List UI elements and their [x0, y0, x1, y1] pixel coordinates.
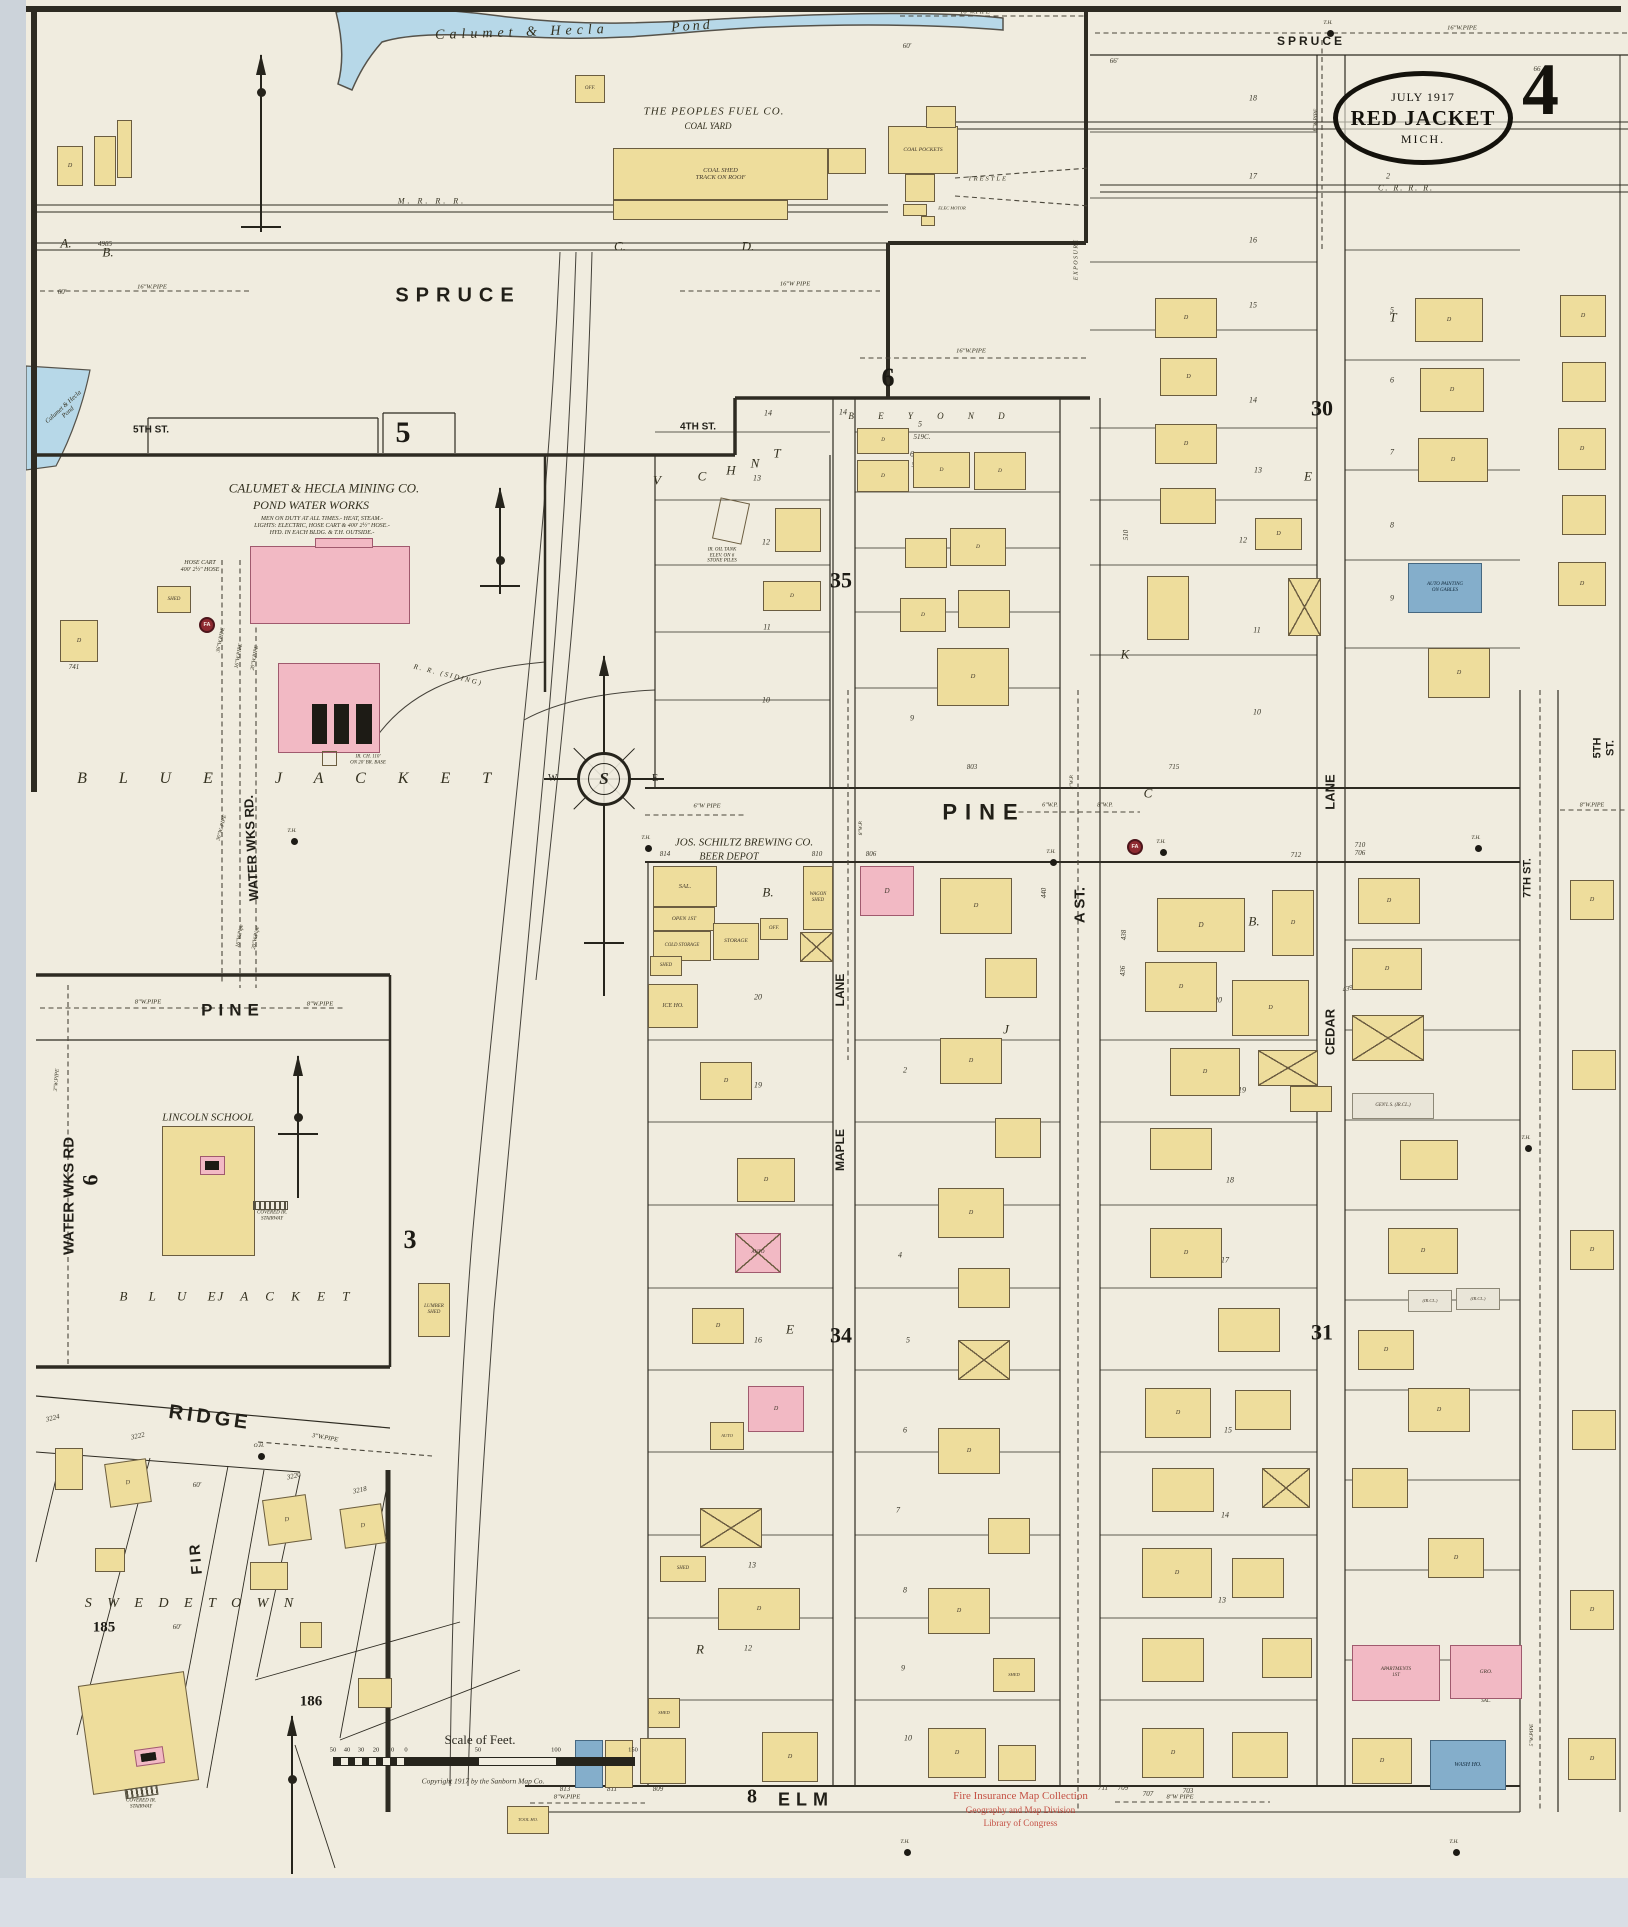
- building: [95, 1548, 125, 1572]
- block-number: 35: [830, 567, 852, 592]
- building: [958, 1340, 1010, 1380]
- lot-number: 8: [903, 1585, 907, 1594]
- building: [94, 136, 116, 186]
- building: [958, 1268, 1010, 1308]
- building: D: [857, 460, 909, 492]
- building: D: [1255, 518, 1302, 550]
- map-note: 8"W.PIPE: [307, 1000, 334, 1007]
- map-note: 8"W PIPE: [1166, 1793, 1193, 1800]
- marker-label: T.H.: [1156, 839, 1165, 845]
- lot-number: 7: [1390, 447, 1394, 456]
- building: D: [1418, 438, 1488, 482]
- fire-alarm-marker: FA: [199, 617, 215, 633]
- map-note: 20"W.PIPE: [250, 645, 261, 671]
- lot-number: 15: [1249, 300, 1257, 309]
- building: D: [737, 1158, 795, 1202]
- building: [1562, 362, 1606, 402]
- scan-edge-left: [0, 0, 26, 1927]
- copyright-note: Copyright 1917 by the Sanborn Map Co.: [422, 1777, 545, 1786]
- building: OPEN 1ST: [653, 907, 715, 931]
- address-label: 60': [173, 1624, 182, 1632]
- survey-marker: [645, 845, 652, 852]
- lot-number: 6: [903, 1425, 907, 1434]
- map-note: MEN ON DUTY AT ALL TIMES.- HEAT, STEAM.-…: [254, 516, 390, 536]
- building: D: [938, 1428, 1000, 1474]
- marker-label: T.H.: [900, 1839, 909, 1845]
- section-letter: B.: [1248, 915, 1259, 930]
- block-number: 34: [830, 1322, 852, 1347]
- lot-number: 4: [898, 1250, 902, 1259]
- lot-number: 20: [754, 992, 762, 1001]
- building: [1262, 1638, 1312, 1678]
- lot-number: 10: [1253, 707, 1261, 716]
- map-note: 16"W.PIPE: [960, 8, 990, 15]
- section-letter: H: [726, 464, 735, 479]
- building: D: [1568, 1738, 1616, 1780]
- lot-number: 13: [748, 1560, 756, 1569]
- building: D: [1358, 1330, 1414, 1370]
- building: LUMBER SHED: [418, 1283, 450, 1337]
- building: GEN'L S. (IR.CL.): [1352, 1093, 1434, 1119]
- building: [162, 1126, 255, 1256]
- lot-number: 12: [744, 1643, 752, 1652]
- lot-number: 8: [1390, 520, 1394, 529]
- address-label: 803: [967, 764, 978, 772]
- map-note: B L U E: [119, 1290, 224, 1305]
- building: D: [262, 1494, 312, 1546]
- lot-number: 5: [1390, 305, 1394, 314]
- section-letter: K: [1121, 648, 1130, 663]
- building: D: [339, 1503, 386, 1548]
- building: TOOL HO.: [507, 1806, 549, 1834]
- building: D: [1145, 962, 1217, 1012]
- map-note: 6"W.P.: [1042, 803, 1058, 810]
- lot-number: 14: [839, 407, 847, 416]
- block-number: 31: [1311, 1319, 1333, 1344]
- building: [958, 590, 1010, 628]
- survey-marker: [1475, 845, 1482, 852]
- map-note: 20"W.Pipe: [251, 926, 261, 950]
- map-note: B E Y O N D: [848, 411, 1015, 421]
- building: [905, 174, 935, 202]
- survey-marker: [291, 838, 298, 845]
- section-letter: E: [1304, 470, 1312, 485]
- building: [613, 200, 788, 220]
- building: D: [950, 528, 1006, 566]
- building: D: [692, 1308, 744, 1344]
- block-number: 3: [404, 1225, 417, 1255]
- building: STORAGE: [713, 923, 759, 960]
- building: [712, 497, 750, 544]
- building: D: [763, 581, 821, 611]
- address-label: 712: [1291, 852, 1302, 860]
- map-note: J A C K E T: [275, 770, 505, 788]
- building: AUTO PAINTING ON GABLES: [1408, 563, 1482, 613]
- building: D: [60, 620, 98, 662]
- address-label: 519C.: [914, 434, 931, 442]
- street-label: 4TH ST.: [680, 421, 716, 432]
- building: [1562, 495, 1606, 535]
- address-label: 703: [1183, 1788, 1194, 1796]
- address-label: 440: [1041, 888, 1049, 899]
- building: [1262, 1468, 1310, 1508]
- street-label: MAPLE: [834, 1129, 848, 1171]
- building: OFF.: [760, 918, 788, 940]
- building: D: [1408, 1388, 1470, 1432]
- building: [828, 148, 866, 174]
- cartouche-date: JULY 1917: [1338, 90, 1508, 105]
- building: D: [1358, 878, 1420, 924]
- lot-number: 11: [763, 622, 770, 631]
- building: [253, 1201, 288, 1210]
- map-note: C. R. R. R.: [1378, 183, 1434, 192]
- street-label: SPRUCE: [1277, 35, 1345, 49]
- building: D: [1150, 1228, 1222, 1278]
- map-note: B L U E: [77, 770, 227, 788]
- building: [921, 216, 935, 226]
- building: D: [860, 866, 914, 916]
- map-note: LINCOLN SCHOOL: [162, 1112, 253, 1125]
- street-label: FIR: [186, 1541, 206, 1576]
- survey-marker: [1050, 859, 1057, 866]
- map-note: Calumet & Hecla: [435, 22, 609, 44]
- building: [300, 1622, 322, 1648]
- map-note: 16"W.PIPE: [234, 643, 245, 669]
- building: COAL POCKETS: [888, 126, 958, 174]
- section-letter: C: [1144, 787, 1153, 802]
- building: D: [748, 1386, 804, 1432]
- scale-title: Scale of Feet.: [444, 1732, 515, 1748]
- building: [1235, 1390, 1291, 1430]
- building: D: [928, 1588, 990, 1634]
- building: [1150, 1128, 1212, 1170]
- building: [700, 1508, 762, 1548]
- section-letter: J: [1003, 1023, 1009, 1038]
- building: AUTO: [735, 1233, 781, 1273]
- map-note: 16"W.PIPE: [1447, 24, 1477, 31]
- building: [995, 1118, 1041, 1158]
- lot-number: 12: [1239, 535, 1247, 544]
- map-note: 8"W.P.: [858, 821, 864, 836]
- marker-label: T.H.: [1521, 1135, 1530, 1141]
- cartouche-city: RED JACKET: [1338, 106, 1508, 131]
- building: [998, 1745, 1036, 1781]
- street-label: WATER WKS RD: [60, 1137, 77, 1255]
- survey-marker: [904, 1849, 911, 1856]
- building: AUTO: [710, 1422, 744, 1450]
- building: [312, 704, 327, 744]
- stamp-line-2: Geography and Map Division: [923, 1804, 1118, 1817]
- building: [315, 538, 373, 548]
- building: [1232, 1732, 1288, 1778]
- map-note: POND WATER WORKS: [253, 499, 369, 513]
- map-note: TRESTLE: [968, 175, 1008, 182]
- building: D: [1388, 1228, 1458, 1274]
- address-label: 715: [1169, 764, 1180, 772]
- building: D: [1160, 358, 1217, 396]
- marker-label: T.H.: [1323, 20, 1332, 26]
- street-label: PINE: [201, 1000, 265, 1019]
- building: D: [1155, 298, 1217, 338]
- section-letter: R: [696, 1643, 704, 1658]
- building: [1572, 1050, 1616, 1090]
- street-label: WATER WKS RD.: [242, 795, 262, 902]
- map-note: 5"W.PIPE: [1529, 1724, 1535, 1746]
- building: OFF.: [575, 75, 605, 103]
- block-number: 8: [747, 1786, 757, 1809]
- building: D: [1142, 1548, 1212, 1598]
- building: D: [1157, 898, 1245, 952]
- compass-monogram: S: [599, 769, 608, 789]
- building: SHED: [648, 1698, 680, 1728]
- building: D: [1155, 424, 1217, 464]
- section-letter: B.: [102, 246, 113, 261]
- street-label: PINE: [942, 799, 1025, 824]
- building: D: [718, 1588, 800, 1630]
- section-letter: E: [786, 1323, 794, 1338]
- sheet-number: 4: [1522, 48, 1559, 133]
- address-label: 3220: [286, 1472, 301, 1483]
- building: D: [1170, 1048, 1240, 1096]
- block-number: 6: [77, 1175, 102, 1186]
- map-note: IR. CH. 110' ON 20' BR. BASE: [350, 754, 386, 765]
- building: [775, 508, 821, 552]
- building: [1218, 1308, 1280, 1352]
- building: [358, 1678, 392, 1708]
- address-label: 710 706: [1355, 842, 1366, 858]
- survey-marker: [1525, 1145, 1532, 1152]
- building: [926, 106, 956, 128]
- lot-number: 16: [754, 1335, 762, 1344]
- building: [356, 704, 372, 744]
- building: [985, 958, 1037, 998]
- marker-label: T.H.: [1449, 1839, 1458, 1845]
- scale-bar-graphic: [333, 1757, 635, 1766]
- building: D: [1142, 1728, 1204, 1778]
- building: D: [1420, 368, 1484, 412]
- map-note: COAL YARD: [685, 121, 732, 131]
- map-annotation-layer: SPRUCESPRUCEPINEPINERIDGEELMFIR4TH ST.5T…: [0, 0, 1628, 1927]
- address-label: 438: [1121, 930, 1129, 941]
- building: D: [1558, 428, 1606, 470]
- lot-number: 17: [1221, 1255, 1229, 1264]
- building: APARTMENTS 1ST: [1352, 1645, 1440, 1701]
- building: D: [1428, 1538, 1484, 1578]
- building: [55, 1448, 83, 1490]
- loc-stamp: Fire Insurance Map Collection Geography …: [923, 1789, 1118, 1830]
- lot-number: 13: [1218, 1595, 1226, 1604]
- block-number: 5: [396, 416, 411, 450]
- scanned-sanborn-map: SPRUCESPRUCEPINEPINERIDGEELMFIR4TH ST.5T…: [0, 0, 1628, 1927]
- building: D: [974, 452, 1026, 490]
- map-note: R. R. (SIDING): [413, 664, 484, 689]
- building: SHED: [157, 586, 191, 613]
- map-cartouche: JULY 1917 RED JACKET MICH.: [1333, 71, 1513, 165]
- building: ICE HO.: [648, 984, 698, 1028]
- map-note: 16"W.PIPE: [137, 283, 167, 290]
- address-label: 809: [653, 1786, 664, 1794]
- survey-marker: [1453, 1849, 1460, 1856]
- address-label: 510: [1123, 530, 1131, 541]
- street-label: 7TH ST.: [1522, 858, 1535, 898]
- lot-number: 9: [1390, 593, 1394, 602]
- street-label: RIDGE: [167, 1401, 253, 1435]
- map-note: S W E D E T O W N: [85, 1596, 300, 1612]
- building: D: [1570, 1230, 1614, 1270]
- building: WASH HO.: [1430, 1740, 1506, 1790]
- map-note: COVERED IR. STAIRWAY: [257, 1210, 287, 1221]
- building: [800, 932, 833, 962]
- map-note: 3"W.PIPE: [311, 1432, 338, 1444]
- building: D: [1415, 298, 1483, 342]
- building: [250, 1562, 288, 1590]
- lot-number: 2: [1386, 171, 1390, 180]
- street-label: 5TH ST.: [1591, 736, 1616, 760]
- address-label: 810: [812, 851, 823, 859]
- building: (IR.CL.): [1456, 1288, 1500, 1310]
- map-note: ELEC MOTOR: [938, 205, 966, 210]
- building: (IR.CL.): [1408, 1290, 1452, 1312]
- street-label: LANE: [834, 974, 848, 1007]
- building: [1258, 1050, 1318, 1086]
- building: [640, 1738, 686, 1784]
- lot-number: 5: [918, 419, 922, 428]
- map-note: Pond: [671, 18, 714, 37]
- building: D: [57, 146, 83, 186]
- section-letter: N: [751, 457, 760, 472]
- building: [117, 120, 132, 178]
- map-note: 8"W.PIPE: [554, 1793, 581, 1800]
- building: [78, 1671, 199, 1795]
- building: COAL SHED TRACK ON ROOF: [613, 148, 828, 200]
- building: SAL.: [653, 866, 717, 907]
- marker-label: T.H.: [1046, 849, 1055, 855]
- building: SHED: [993, 1658, 1035, 1692]
- building: D: [1352, 1738, 1412, 1784]
- lot-number: 14: [1249, 395, 1257, 404]
- marker-label: T.H.: [1471, 835, 1480, 841]
- lot-number: 11: [1253, 625, 1260, 634]
- address-label: 3222: [130, 1432, 145, 1443]
- building: [1288, 578, 1321, 636]
- map-note: 6"W PIPE: [693, 802, 720, 809]
- map-note: CALUMET & HECLA MINING CO.: [229, 482, 420, 497]
- map-note: THE PEOPLES FUEL CO.: [644, 106, 785, 119]
- stamp-line-1: Fire Insurance Map Collection: [923, 1789, 1118, 1804]
- address-label: 436: [1120, 966, 1128, 977]
- map-note: 8"W.P.: [1097, 803, 1113, 810]
- building: D: [700, 1062, 752, 1100]
- building: D: [937, 648, 1009, 706]
- building: D: [1352, 948, 1422, 990]
- map-note: 3"W.PIPE: [53, 1069, 61, 1092]
- street-label: ELM: [778, 1790, 834, 1811]
- lot-number: 16: [1249, 235, 1257, 244]
- map-note: 16"W.PIPE: [956, 347, 986, 354]
- address-label: 3218: [352, 1486, 367, 1497]
- section-letter: B.: [762, 886, 773, 901]
- building: D: [1570, 880, 1614, 920]
- map-note: J A C K E T: [217, 1290, 356, 1305]
- map-note: HOSE CART 400' 2½" HOSE: [181, 560, 220, 574]
- building: [205, 1161, 219, 1170]
- lot-number: 9: [910, 713, 914, 722]
- building: [1232, 1558, 1284, 1598]
- block-number: 186: [300, 1693, 323, 1710]
- street-label: CEDAR: [1324, 1009, 1339, 1055]
- street-label: A ST.: [1071, 887, 1088, 923]
- building: D: [104, 1458, 152, 1507]
- lot-number: 13: [1254, 465, 1262, 474]
- building: SHED: [660, 1556, 706, 1582]
- cartouche-state: MICH.: [1338, 132, 1508, 147]
- building: D: [1558, 562, 1606, 606]
- address-label: 66': [1110, 58, 1119, 66]
- map-note: Calumet & Hecla Pond: [44, 389, 88, 431]
- building: D: [1232, 980, 1309, 1036]
- building: D: [913, 452, 970, 488]
- building: [250, 546, 410, 624]
- building: [1152, 1468, 1214, 1512]
- fire-alarm-marker: FA: [1127, 839, 1143, 855]
- lot-number: 6: [1390, 375, 1394, 384]
- address-label: 60': [903, 43, 912, 51]
- map-note: COVERED IR. STAIRWAY: [126, 1798, 156, 1809]
- address-label: 60': [58, 289, 67, 297]
- lot-number: 14: [764, 408, 772, 417]
- building: D: [1560, 295, 1606, 337]
- map-note: 8"W.P.: [1069, 775, 1075, 790]
- building: [988, 1518, 1030, 1554]
- address-label: 4985: [98, 241, 112, 249]
- lot-number: 19: [754, 1080, 762, 1089]
- building: [1147, 576, 1189, 640]
- block-number: 185: [93, 1619, 116, 1636]
- map-note: 36"W.PIPE: [215, 627, 226, 653]
- building: [322, 751, 337, 766]
- map-note: SAL.: [1481, 1699, 1491, 1705]
- map-note: JOS. SCHILTZ BREWING CO.: [675, 837, 813, 850]
- building: [903, 204, 927, 216]
- building: SHED: [650, 956, 682, 976]
- map-note: BEER DEPOT: [699, 851, 758, 862]
- street-label: 5TH ST.: [133, 424, 169, 435]
- building: D: [1145, 1388, 1211, 1438]
- lot-number: 12: [762, 537, 770, 546]
- building: D: [928, 1728, 986, 1778]
- address-label: 814: [660, 851, 671, 859]
- building: [1352, 1468, 1408, 1508]
- address-label: 60': [193, 1482, 202, 1490]
- map-note: M. R. R. R.: [398, 196, 466, 205]
- lot-number: 17: [1249, 171, 1257, 180]
- map-note: 16"W.Pipe: [235, 924, 245, 948]
- map-note: 8"W.PIPE: [1580, 803, 1604, 810]
- survey-marker: [1327, 30, 1334, 37]
- scan-edge-bottom: [0, 1878, 1628, 1927]
- section-letter: C: [698, 470, 707, 485]
- building: D: [1272, 890, 1314, 956]
- lot-number: 5: [906, 1335, 910, 1344]
- section-letter: C.: [614, 240, 626, 255]
- building: D: [762, 1732, 818, 1782]
- address-label: 741: [69, 664, 80, 672]
- building: [1160, 488, 1216, 524]
- lot-number: 13: [753, 473, 761, 482]
- section-letter: A.: [60, 237, 71, 252]
- lot-number: 18: [1226, 1175, 1234, 1184]
- section-letter: T: [1389, 311, 1396, 326]
